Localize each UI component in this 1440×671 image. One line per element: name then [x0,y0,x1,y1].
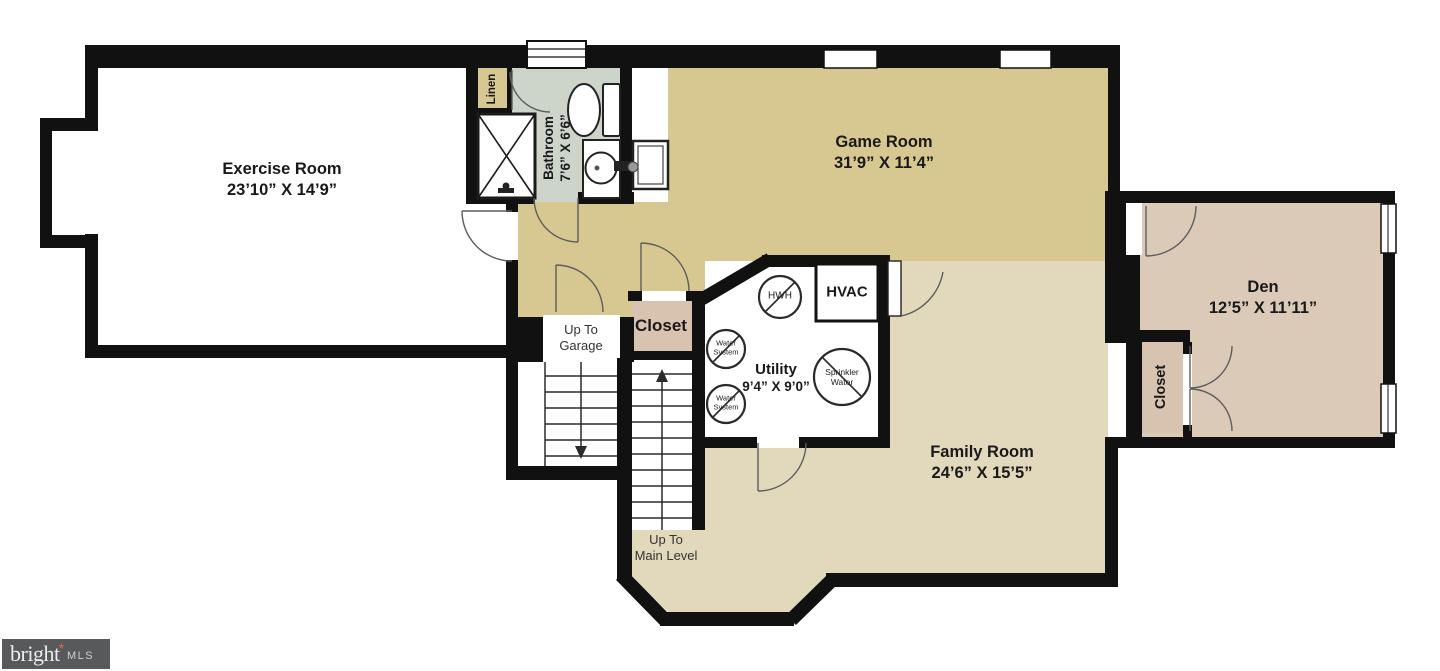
up-to-garage-label: Up To Garage [559,322,602,354]
floorplan-canvas: Exercise Room 23’10” X 14’9” Game Room 3… [0,0,1440,671]
shower [478,114,535,198]
logo-suffix-text: MLS [67,650,94,662]
tub-faucet-icon [628,162,638,172]
game-room-window-left [824,50,877,68]
bathroom-label: Bathroom 7’6” X 6’6” [540,114,574,182]
floorplan-drawing [0,0,1440,671]
game-room-window-right [1000,50,1051,68]
linen-label: Linen [486,74,498,105]
exercise-room-door [462,211,512,261]
hvac-label: HVAC [826,284,867,301]
exercise-room-dims: 23’10” X 14’9” [222,180,341,201]
bathroom-window [527,41,586,68]
bathroom-dims: 7’6” X 6’6” [557,114,574,182]
water-system-label-2: Water System [713,395,738,412]
water-system-label-1: Water System [713,340,738,357]
toilet [568,84,620,136]
up-to-main-level-label: Up To Main Level [635,532,698,564]
utility-label: Utility 9’4” X 9’0” [742,360,810,394]
logo-asterisk-icon: * [59,640,64,656]
hall-closet-label: Closet [635,316,687,336]
brightmls-logo: bright * MLS [2,639,110,669]
game-room-dims: 31’9” X 11’4” [834,153,934,174]
den-closet-label: Closet [1153,365,1169,409]
exercise-room-name: Exercise Room [222,159,341,180]
family-room-name: Family Room [930,442,1034,463]
game-room-name: Game Room [834,132,934,153]
game-room-label: Game Room 31’9” X 11’4” [834,132,934,174]
den-window-bottom [1381,384,1396,433]
utility-dims: 9’4” X 9’0” [742,379,810,394]
den-dims: 12’5” X 11’11” [1209,298,1317,319]
family-room-label: Family Room 24’6” X 15’5” [930,442,1034,484]
sprinkler-water-label: Sprinkler Water [825,367,859,387]
garage-stairs-floor [518,362,617,466]
utility-name: Utility [742,360,810,379]
den-door-opening [1126,203,1142,255]
laundry-tub [628,141,668,189]
family-room-dims: 24’6” X 15’5” [930,463,1034,484]
bathroom-name: Bathroom [540,114,557,182]
den-window-top [1381,204,1396,253]
hwh-label: HWH [768,291,792,302]
logo-brand-text: bright [10,643,60,665]
exercise-room-label: Exercise Room 23’10” X 14’9” [222,159,341,201]
den-name: Den [1209,277,1317,298]
den-label: Den 12’5” X 11’11” [1209,277,1317,319]
